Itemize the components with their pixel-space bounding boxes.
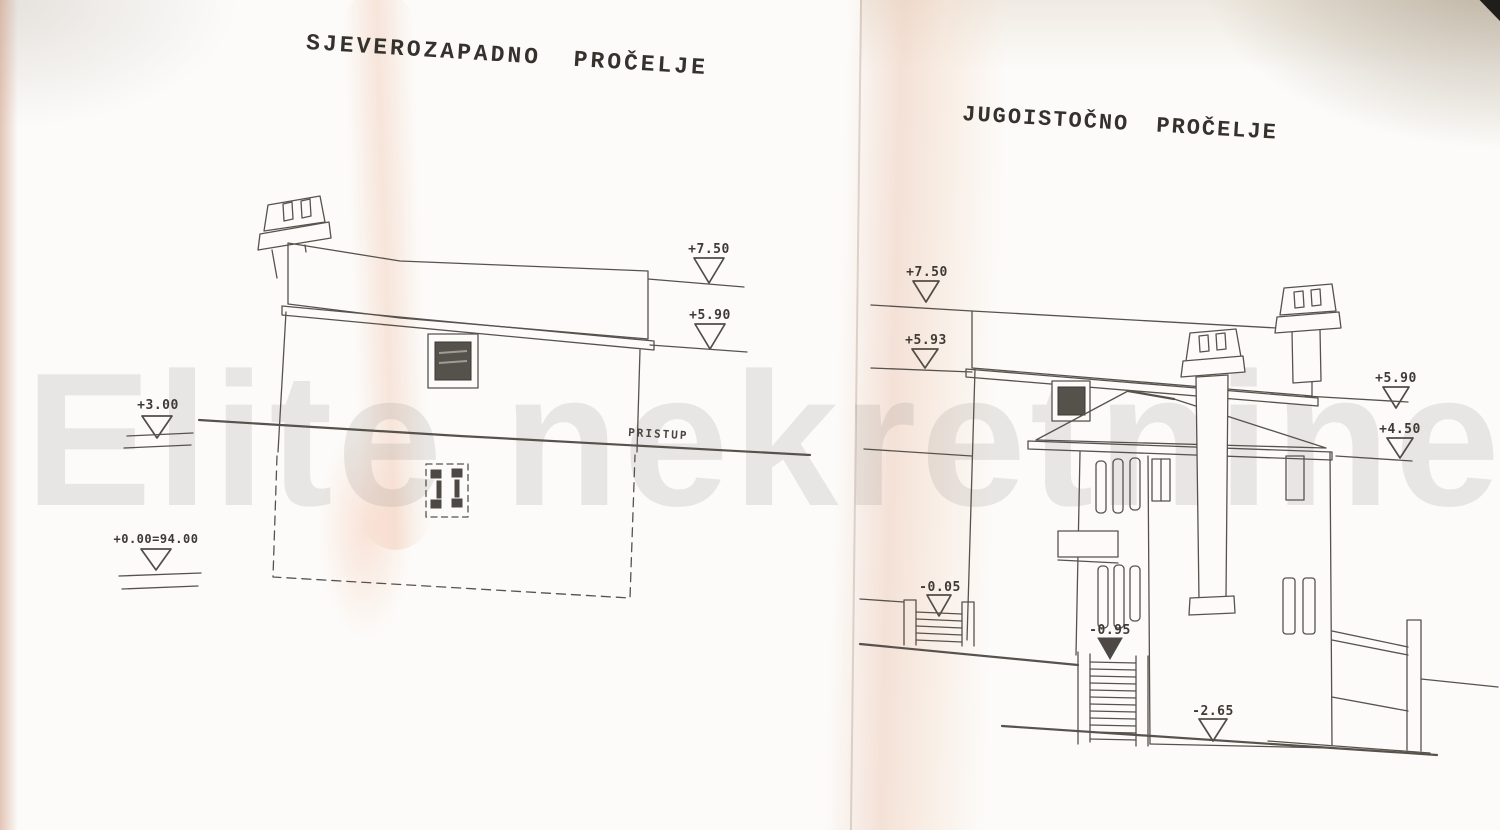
se-eave-label: +5.93 [905,333,947,348]
elevation-triangle-icon [1387,438,1413,458]
se-walls [967,369,1332,748]
nw-datum-label: +0.00=94.00 [114,532,199,546]
se-marker-lower-ground: -2.65 [1192,704,1234,741]
elevation-triangle-icon [694,258,724,283]
nw-marker-eave: +5.90 [650,308,747,352]
se-right-chimney [1275,284,1341,383]
se-upper-shutter-windows [1096,458,1140,513]
nw-ground-line: PRISTUP [199,420,810,455]
nw-facade-drawing: PRISTUP +7.50 +5.90 [114,196,810,598]
se-retaining-walls [1268,620,1498,753]
se-marker-porch-eave: +4.50 [1336,422,1421,461]
nw-basement-window [426,464,468,517]
se-marker-eave: +5.93 [871,333,972,372]
nw-chimney [258,196,331,278]
se-marker-entry: -0.95 [1089,623,1131,659]
se-ridge-label: +7.50 [906,265,948,280]
elevation-triangle-icon [1199,719,1227,741]
se-wing-ridge-label: +5.90 [1375,371,1417,386]
nw-attic-window [428,334,478,388]
se-entry-label: -0.95 [1089,623,1131,638]
nw-eave-label: +5.90 [689,308,731,323]
scanned-elevation-sheet: Elite nekretnine [0,0,1500,830]
se-marker-ridge: +7.50 [871,265,972,311]
se-terrace-steps [860,599,1078,665]
elevation-triangle-icon [695,324,725,349]
se-awning-box [1058,531,1118,563]
elevation-triangle-icon [1383,387,1409,408]
elevation-triangle-icon [913,281,939,302]
se-rear-ground-line [864,449,972,456]
se-porch-eave-label: +4.50 [1379,422,1421,437]
se-lower-ground-label: -2.65 [1192,704,1234,719]
se-lower-shutter-windows [1098,565,1140,628]
nw-marker-ridge: +7.50 [648,242,744,287]
elevation-triangle-icon [1098,638,1122,659]
nw-marker-access: +3.00 [124,398,193,448]
nw-ridge-label: +7.50 [688,242,730,257]
elevation-triangle-icon [912,349,938,368]
se-terrace-label: -0.05 [919,580,961,595]
se-marker-wing-ridge: +5.90 [1305,371,1417,408]
nw-marker-datum: +0.00=94.00 [114,532,201,589]
elevation-triangle-icon [141,549,171,570]
nw-walls [278,312,640,452]
se-flue-column [1181,329,1245,615]
se-main-roof [966,311,1318,406]
se-marker-terrace: -0.05 [919,580,961,616]
se-facade-drawing: +7.50 +5.93 [860,265,1498,755]
nw-access-label: +3.00 [137,398,179,413]
